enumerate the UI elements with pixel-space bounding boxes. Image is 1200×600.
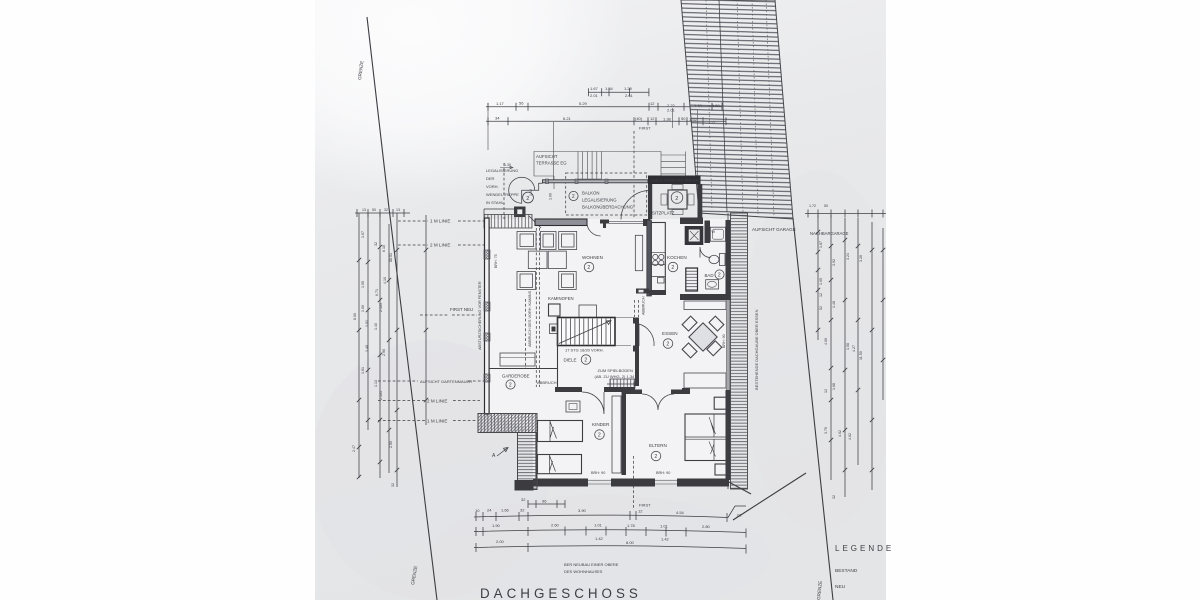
svg-text:1.13: 1.13 <box>374 380 378 387</box>
svg-text:1.66: 1.66 <box>501 508 510 513</box>
svg-text:NACHBARGARAGE: NACHBARGARAGE <box>810 231 849 236</box>
svg-text:LEGALISIERUNG: LEGALISIERUNG <box>486 168 518 173</box>
svg-text:8.00: 8.00 <box>626 540 635 545</box>
svg-text:KINDER: KINDER <box>592 422 610 427</box>
svg-text:BER NEUBAU EINER OBERE: BER NEUBAU EINER OBERE <box>564 562 619 567</box>
svg-text:KOCHEN: KOCHEN <box>667 255 687 260</box>
svg-text:3.90: 3.90 <box>578 508 587 513</box>
svg-text:1.42: 1.42 <box>595 536 604 541</box>
svg-text:2.90: 2.90 <box>382 349 386 356</box>
svg-text:1.52: 1.52 <box>689 117 698 122</box>
svg-text:4.54: 4.54 <box>676 510 685 515</box>
svg-text:2.50: 2.50 <box>389 441 393 448</box>
svg-text:ELTERN: ELTERN <box>649 443 667 448</box>
svg-text:2.80: 2.80 <box>702 524 711 529</box>
svg-text:1.67: 1.67 <box>590 86 599 91</box>
svg-text:1.60: 1.60 <box>549 193 553 200</box>
svg-text:32: 32 <box>832 495 836 499</box>
svg-text:2: 2 <box>509 383 512 389</box>
svg-text:.02: .02 <box>736 513 742 518</box>
svg-text:1.01: 1.01 <box>660 524 669 529</box>
svg-text:1.17: 1.17 <box>496 101 505 106</box>
svg-text:1.62: 1.62 <box>529 189 533 196</box>
svg-text:2: 2 <box>675 196 678 202</box>
svg-text:32: 32 <box>391 483 395 487</box>
svg-text:2.60: 2.60 <box>551 523 560 528</box>
svg-text:3.24: 3.24 <box>846 253 850 260</box>
svg-text:2: 2 <box>587 265 590 271</box>
svg-text:DER: DER <box>486 176 495 181</box>
svg-text:24: 24 <box>487 508 492 513</box>
svg-text:12: 12 <box>650 101 655 106</box>
svg-text:1 M LINIE: 1 M LINIE <box>430 219 450 224</box>
svg-text:2.105: 2.105 <box>379 303 383 312</box>
svg-text:1.10: 1.10 <box>694 103 703 108</box>
svg-text:LEGALISIERUNG: LEGALISIERUNG <box>582 198 617 203</box>
svg-text:FIRST: FIRST <box>639 126 651 131</box>
svg-text:3.70: 3.70 <box>824 427 828 434</box>
svg-text:ABBRUCH DES VORH. KAMINS: ABBRUCH DES VORH. KAMINS <box>528 290 532 347</box>
svg-text:1.05: 1.05 <box>819 278 823 285</box>
svg-text:AUFSICHT: AUFSICHT <box>536 154 558 159</box>
svg-text:SITZPLATZ: SITZPLATZ <box>652 211 675 216</box>
svg-text:BRH: 90: BRH: 90 <box>722 334 726 348</box>
svg-text:17 STG 18/20 VORH.: 17 STG 18/20 VORH. <box>565 348 604 353</box>
svg-text:2: 2 <box>654 454 657 460</box>
svg-text:WOHNEN: WOHNEN <box>582 255 603 260</box>
svg-text:LEGALISIERUNG ERKER: LEGALISIERUNG ERKER <box>651 178 699 183</box>
svg-text:10: 10 <box>475 508 480 513</box>
svg-text:2.61: 2.61 <box>625 93 634 98</box>
svg-text:52: 52 <box>819 306 823 310</box>
svg-text:1 M LINIE: 1 M LINIE <box>427 419 447 424</box>
svg-text:2.105: 2.105 <box>379 391 383 400</box>
svg-text:ABBRUCH: ABBRUCH <box>537 380 557 385</box>
svg-text:BRH: 75: BRH: 75 <box>494 254 498 268</box>
svg-text:32: 32 <box>521 497 526 502</box>
svg-text:W: W <box>712 230 716 234</box>
svg-text:1.05: 1.05 <box>361 281 365 288</box>
svg-text:6.71: 6.71 <box>375 289 379 296</box>
svg-text:4.27: 4.27 <box>852 345 856 352</box>
svg-text:BAD: BAD <box>705 273 714 278</box>
svg-text:BALKON: BALKON <box>582 191 599 196</box>
svg-text:50: 50 <box>372 208 376 212</box>
svg-text:1.01: 1.01 <box>594 523 603 528</box>
svg-text:12: 12 <box>638 509 643 514</box>
svg-text:88.51: 88.51 <box>389 253 393 262</box>
svg-text:ESSEN: ESSEN <box>662 331 678 336</box>
svg-text:ABBRUCH: ABBRUCH <box>642 296 646 315</box>
svg-text:1.50: 1.50 <box>712 103 721 108</box>
svg-text:8.00: 8.00 <box>353 313 357 320</box>
svg-text:2: 2 <box>718 273 721 279</box>
svg-text:1.48: 1.48 <box>365 345 369 352</box>
svg-text:4.02: 4.02 <box>838 430 842 437</box>
svg-text:(40): (40) <box>635 116 643 121</box>
svg-text:6.10: 6.10 <box>382 245 386 252</box>
svg-text:2: 2 <box>598 433 601 439</box>
svg-text:1.68: 1.68 <box>832 383 836 390</box>
svg-text:12: 12 <box>824 389 828 393</box>
svg-text:5.29: 5.29 <box>579 101 588 106</box>
svg-text:13: 13 <box>396 208 400 212</box>
svg-text:2: 2 <box>671 265 674 271</box>
svg-text:BRH: 90: BRH: 90 <box>656 471 670 475</box>
svg-text:32: 32 <box>520 508 525 513</box>
svg-text:6.21: 6.21 <box>563 116 572 121</box>
svg-text:2.01: 2.01 <box>590 93 599 98</box>
svg-text:TERRASSE EG: TERRASSE EG <box>536 161 567 166</box>
svg-text:1.27: 1.27 <box>708 120 717 125</box>
svg-text:1.01: 1.01 <box>365 320 369 327</box>
svg-text:KAMINOFEN: KAMINOFEN <box>548 296 574 301</box>
svg-text:1.00: 1.00 <box>361 305 365 312</box>
svg-text:1.90: 1.90 <box>492 523 501 528</box>
svg-text:32: 32 <box>374 242 378 246</box>
svg-text:VORH.: VORH. <box>486 184 499 189</box>
svg-text:AUFSICHT GARTENMAUER: AUFSICHT GARTENMAUER <box>420 379 472 384</box>
svg-text:NEU: NEU <box>835 584 846 590</box>
svg-text:13: 13 <box>362 208 366 212</box>
svg-text:1.54: 1.54 <box>605 86 614 91</box>
svg-text:1.58: 1.58 <box>846 343 850 350</box>
svg-text:1.67: 1.67 <box>361 231 365 238</box>
svg-text:2: 2 <box>666 342 669 348</box>
svg-text:BESTEHENDE DACHGAUBE ÜBER ESSE: BESTEHENDE DACHGAUBE ÜBER ESSEN <box>754 309 759 390</box>
svg-text:2: 2 <box>572 194 575 200</box>
svg-text:3.26: 3.26 <box>859 255 863 262</box>
svg-text:DACHGESCHOSS: DACHGESCHOSS <box>480 586 642 600</box>
svg-text:1.87: 1.87 <box>819 241 823 248</box>
svg-text:BRH: 90: BRH: 90 <box>591 471 605 475</box>
svg-text:2.01: 2.01 <box>667 108 676 113</box>
svg-text:FIRST: FIRST <box>639 503 651 508</box>
svg-text:34: 34 <box>495 116 500 121</box>
svg-text:4.62: 4.62 <box>848 433 852 440</box>
svg-text:DIELE: DIELE <box>564 358 577 363</box>
svg-text:IN STAHL: IN STAHL <box>486 200 504 205</box>
svg-text:(AB. ZU WHG. 2) 1.34: (AB. ZU WHG. 2) 1.34 <box>595 374 636 379</box>
svg-text:4.10: 4.10 <box>383 277 387 284</box>
svg-text:1.38: 1.38 <box>663 117 672 122</box>
svg-text:ABSTURZSICHERUNG VOR FENSTER: ABSTURZSICHERUNG VOR FENSTER <box>478 281 482 350</box>
svg-text:LEGENDE: LEGENDE <box>835 544 894 553</box>
svg-text:50: 50 <box>681 116 686 121</box>
svg-text:3.92: 3.92 <box>832 259 836 266</box>
svg-text:2 M LINIE: 2 M LINIE <box>427 399 447 404</box>
svg-text:DES WOHNHAUSES: DES WOHNHAUSES <box>564 569 603 574</box>
svg-text:2: 2 <box>584 358 587 364</box>
svg-text:2 M LINIE: 2 M LINIE <box>430 243 450 248</box>
svg-text:2.47: 2.47 <box>352 445 356 452</box>
svg-text:2.00: 2.00 <box>496 539 505 544</box>
svg-text:4.00: 4.00 <box>824 338 828 345</box>
svg-text:1.40: 1.40 <box>374 323 378 330</box>
svg-text:BESTAND: BESTAND <box>835 568 858 574</box>
svg-text:1.72: 1.72 <box>809 204 816 208</box>
svg-text:1.28: 1.28 <box>624 86 633 91</box>
svg-text:FIRST NEU: FIRST NEU <box>450 307 473 312</box>
svg-text:12: 12 <box>819 293 823 297</box>
svg-text:50: 50 <box>824 204 828 208</box>
svg-text:1.61: 1.61 <box>361 367 365 374</box>
svg-text:32: 32 <box>384 208 388 212</box>
svg-text:ZUM SPIELBODEN: ZUM SPIELBODEN <box>598 368 633 373</box>
svg-text:12: 12 <box>650 116 655 121</box>
svg-text:11.50: 11.50 <box>859 351 863 360</box>
svg-text:96: 96 <box>542 499 547 504</box>
svg-text:WENDELTREPPE: WENDELTREPPE <box>486 192 519 197</box>
svg-text:1.78: 1.78 <box>627 523 636 528</box>
svg-text:BALKONÜBERDACHUNG: BALKONÜBERDACHUNG <box>582 205 634 210</box>
svg-text:GARDEROBE: GARDEROBE <box>502 374 530 379</box>
svg-text:1.48: 1.48 <box>832 301 836 308</box>
svg-text:56: 56 <box>519 101 524 106</box>
svg-text:1.42: 1.42 <box>661 537 670 542</box>
svg-text:AUFSICHT GARAGE: AUFSICHT GARAGE <box>752 227 796 232</box>
